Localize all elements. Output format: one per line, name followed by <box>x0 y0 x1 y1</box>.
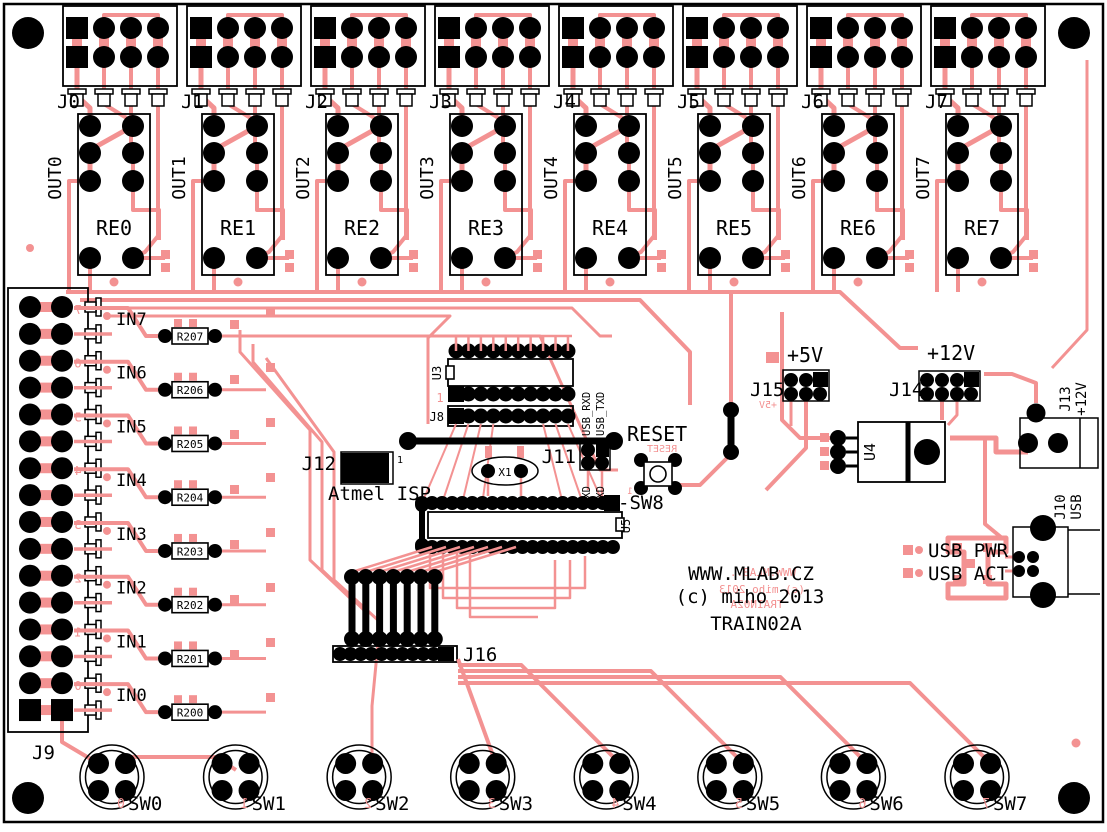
u3-label: U3 <box>430 366 444 380</box>
relay-label-RE5: RE5 <box>716 216 752 240</box>
output-label-OUT4: OUT4 <box>541 156 562 199</box>
resistor-label-R205: R205 <box>177 438 204 451</box>
sw8-label: -SW8 <box>618 492 664 514</box>
resistor-label-R202: R202 <box>177 599 204 612</box>
usb-act-label: USB ACT <box>928 563 1008 585</box>
connector-label-J1: J1 <box>181 91 204 113</box>
input-label-IN7: IN7 <box>116 310 147 330</box>
j8-label: J8 <box>430 410 444 424</box>
relay-label-RE2: RE2 <box>344 216 380 240</box>
relay-label-RE1: RE1 <box>220 216 256 240</box>
switch-label-SW4: SW4 <box>622 793 656 815</box>
via <box>103 366 111 374</box>
title-copyright: (c) miho 2013 <box>676 586 825 608</box>
output-label-OUT5: OUT5 <box>665 156 686 199</box>
input-label-IN4: IN4 <box>116 471 147 491</box>
relay-label-RE3: RE3 <box>468 216 504 240</box>
resistor-label-R207: R207 <box>177 331 204 344</box>
j13-label: J13 <box>1058 386 1074 411</box>
switch-label-SW5: SW5 <box>746 793 780 815</box>
j14-label: J14 <box>889 379 923 401</box>
title-board-name: TRAIN02A <box>710 613 802 635</box>
via <box>234 278 243 287</box>
usb-txd-label: USB_TXD <box>595 392 607 436</box>
pcb-screenshot: J0RE0OUT0J1RE1OUT1J2RE2OUT2J3RE3OUT3J4RE… <box>0 0 1107 832</box>
output-label-OUT0: OUT0 <box>45 156 66 199</box>
switch-copper-digit-4: 4 <box>611 797 619 812</box>
via <box>103 473 111 481</box>
mounting-hole-bottom-left <box>12 782 44 814</box>
input-copper-pin-0: 0 <box>74 679 81 693</box>
input-copper-pin-3: 3 <box>74 518 81 532</box>
usb-pwr-led-pad <box>903 545 913 555</box>
input-label-IN2: IN2 <box>116 579 147 599</box>
mounting-hole-top-left <box>12 17 44 49</box>
switch-copper-digit-7: 7 <box>982 797 990 812</box>
j13-voltage-label: +12V <box>1074 382 1090 416</box>
switch-label-SW0: SW0 <box>128 793 162 815</box>
switch-copper-digit-2: 2 <box>364 797 372 812</box>
via <box>110 278 119 287</box>
relay-label-RE0: RE0 <box>96 216 132 240</box>
via <box>854 278 863 287</box>
switch-copper-digit-5: 5 <box>735 797 743 812</box>
switch-label-SW3: SW3 <box>499 793 533 815</box>
via <box>1072 739 1081 748</box>
input-label-IN3: IN3 <box>116 525 147 545</box>
serial-header-label: J11 <box>542 446 576 468</box>
rxd-label: RXD <box>595 486 607 505</box>
plus5v-copper-mirror: +5V <box>759 400 777 411</box>
relay-label-RE7: RE7 <box>964 216 1000 240</box>
switch-copper-digit-6: 6 <box>859 797 867 812</box>
reset-label: RESET <box>627 422 687 446</box>
j15-label: J15 <box>750 379 784 401</box>
via <box>103 419 111 427</box>
input-copper-pin-7: 7 <box>74 303 81 317</box>
u3-pin1-mark: 1 <box>436 391 443 405</box>
output-label-OUT3: OUT3 <box>417 156 438 199</box>
via <box>103 688 111 696</box>
connector-label-J4: J4 <box>553 91 576 113</box>
output-label-OUT7: OUT7 <box>913 156 934 199</box>
resistor-label-R206: R206 <box>177 384 204 397</box>
output-label-OUT6: OUT6 <box>789 156 810 199</box>
connector-label-J7: J7 <box>925 91 948 113</box>
switch-label-SW7: SW7 <box>993 793 1027 815</box>
switch-label-SW6: SW6 <box>869 793 903 815</box>
isp-ref-label: J12 <box>302 453 336 475</box>
j9-label: J9 <box>32 742 55 764</box>
plus5v-label: +5V <box>787 343 823 367</box>
plus12v-label: +12V <box>927 341 975 365</box>
usb-label: USB <box>1069 494 1085 519</box>
usb-rxd-label: USB_RXD <box>581 392 593 436</box>
txd-label: TXD <box>581 486 593 505</box>
via <box>103 527 111 535</box>
u5-label: U5 <box>619 519 633 533</box>
input-copper-pin-4: 4 <box>74 464 81 478</box>
u4-label: U4 <box>861 443 879 461</box>
via <box>606 278 615 287</box>
via <box>730 278 739 287</box>
input-label-IN6: IN6 <box>116 364 147 384</box>
reset-copper-mirror: RESET <box>647 444 677 455</box>
input-copper-pin-1: 1 <box>74 625 81 639</box>
isp-name-label: Atmel ISP <box>328 483 431 505</box>
plus5v-test-pad <box>766 352 779 363</box>
mounting-hole-bottom-right <box>1058 782 1090 814</box>
via <box>103 312 111 320</box>
output-label-OUT2: OUT2 <box>293 156 314 199</box>
connector-label-J2: J2 <box>305 91 328 113</box>
mounting-hole-top-right <box>1058 17 1090 49</box>
j10-label: J10 <box>1053 494 1069 519</box>
via <box>103 581 111 589</box>
connector-label-J3: J3 <box>429 91 452 113</box>
resistor-label-R200: R200 <box>177 707 204 720</box>
switch-copper-digit-1: 1 <box>241 797 249 812</box>
connector-label-J5: J5 <box>677 91 700 113</box>
resistor-label-R201: R201 <box>177 653 204 666</box>
input-copper-pin-2: 2 <box>74 572 81 586</box>
switch-label-SW2: SW2 <box>375 793 409 815</box>
input-label-IN1: IN1 <box>116 632 147 652</box>
resistor-label-R204: R204 <box>177 492 204 505</box>
switch-copper-digit-0: 0 <box>117 797 125 812</box>
switch-label-SW1: SW1 <box>252 793 286 815</box>
isp-pin1-mark: 1 <box>397 455 403 466</box>
j16-label: J16 <box>463 644 497 666</box>
input-label-IN0: IN0 <box>116 686 147 706</box>
title-url: WWW.MLAB.CZ <box>688 563 814 585</box>
crystal-label: X1 <box>498 466 511 479</box>
via <box>26 244 34 252</box>
via <box>358 278 367 287</box>
input-copper-pin-6: 6 <box>74 357 81 371</box>
resistor-label-R203: R203 <box>177 545 204 558</box>
usb-act-led-pad <box>903 568 913 578</box>
output-label-OUT1: OUT1 <box>169 156 190 199</box>
connector-label-J0: J0 <box>57 91 80 113</box>
relay-label-RE4: RE4 <box>592 216 628 240</box>
via <box>482 278 491 287</box>
input-copper-pin-5: 5 <box>74 410 81 424</box>
input-label-IN5: IN5 <box>116 417 147 437</box>
usb-pwr-label: USB PWR <box>928 540 1009 562</box>
via <box>103 634 111 642</box>
via <box>978 278 987 287</box>
relay-label-RE6: RE6 <box>840 216 876 240</box>
switch-copper-digit-3: 3 <box>488 797 496 812</box>
pcb-layout-train02a: J0RE0OUT0J1RE1OUT1J2RE2OUT2J3RE3OUT3J4RE… <box>0 0 1107 832</box>
connector-label-J6: J6 <box>801 91 824 113</box>
